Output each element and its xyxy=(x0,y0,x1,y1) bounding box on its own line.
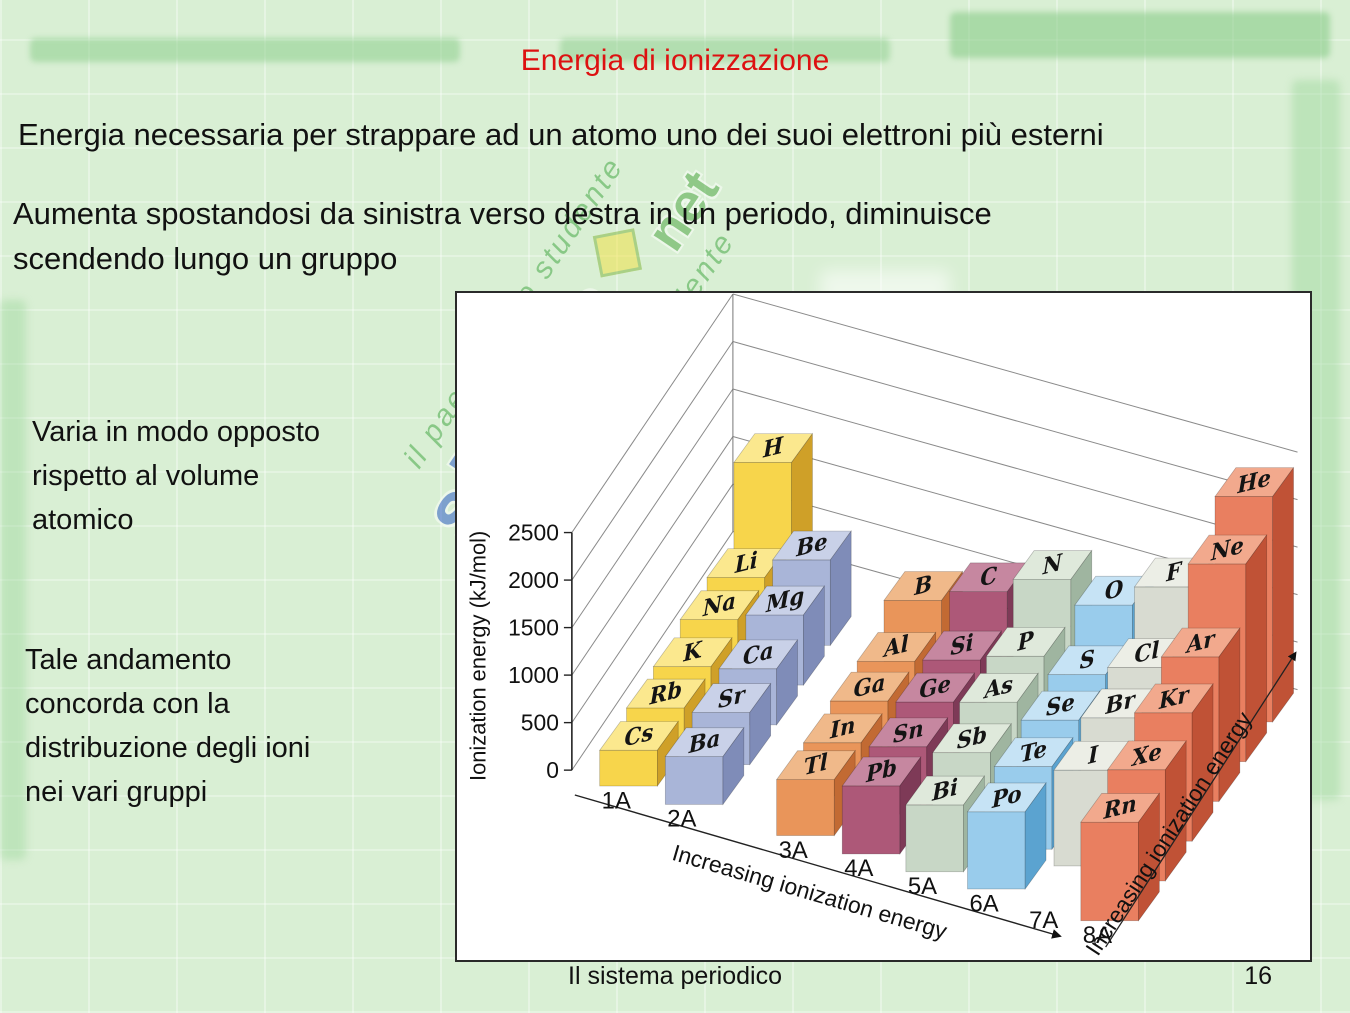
background-blob xyxy=(0,300,26,860)
y-axis: 05001000150020002500Ionization energy (k… xyxy=(465,520,571,784)
y-tick-label: 1000 xyxy=(508,662,559,688)
bar-label-O: O xyxy=(1105,575,1124,606)
y-tick-label: 2000 xyxy=(508,567,559,593)
group-label-2A: 2A xyxy=(667,806,696,833)
page-title: Energia di ionizzazione xyxy=(0,44,1350,78)
ionization-energy-chart-svg: 05001000150020002500Ionization energy (k… xyxy=(457,293,1310,960)
group-label-4A: 4A xyxy=(844,855,873,882)
group-label-7A: 7A xyxy=(1029,907,1058,934)
group-label-1A: 1A xyxy=(602,787,631,814)
group-label-3A: 3A xyxy=(779,837,808,864)
y-tick-label: 1500 xyxy=(508,615,559,641)
paragraph-definition: Energia necessaria per strappare ad un a… xyxy=(18,116,1348,155)
group-label-5A: 5A xyxy=(908,873,937,900)
note-ions: Tale andamento concorda con la distribuz… xyxy=(25,638,435,814)
bar-label-S: S xyxy=(1080,645,1095,675)
page-number: 16 xyxy=(1244,962,1272,991)
footer-caption: Il sistema periodico xyxy=(0,962,1350,991)
ionization-energy-chart: 05001000150020002500Ionization energy (k… xyxy=(455,291,1312,962)
group-label-6A: 6A xyxy=(969,890,998,917)
bar-label-I: I xyxy=(1087,741,1098,770)
y-tick-label: 0 xyxy=(546,757,559,783)
bar-label-F: F xyxy=(1165,557,1183,588)
y-axis-title: Ionization energy (kJ/mol) xyxy=(465,531,490,781)
bar-label-C: C xyxy=(980,562,997,593)
paragraph-trend: Aumenta spostandosi da sinistra verso de… xyxy=(13,192,1293,282)
y-tick-label: 500 xyxy=(521,710,559,736)
bar-label-P: P xyxy=(1017,626,1035,657)
bar-label-K: K xyxy=(682,636,703,668)
bar-label-B: B xyxy=(913,570,932,601)
bar-label-N: N xyxy=(1042,549,1063,581)
note-volume: Varia in modo opposto rispetto al volume… xyxy=(32,410,432,542)
bar-label-H: H xyxy=(762,432,784,464)
slide: { "slide": { "title": "Energia di ionizz… xyxy=(0,0,1350,1013)
y-tick-label: 2500 xyxy=(508,520,559,546)
bar-Po: Po xyxy=(967,780,1046,889)
